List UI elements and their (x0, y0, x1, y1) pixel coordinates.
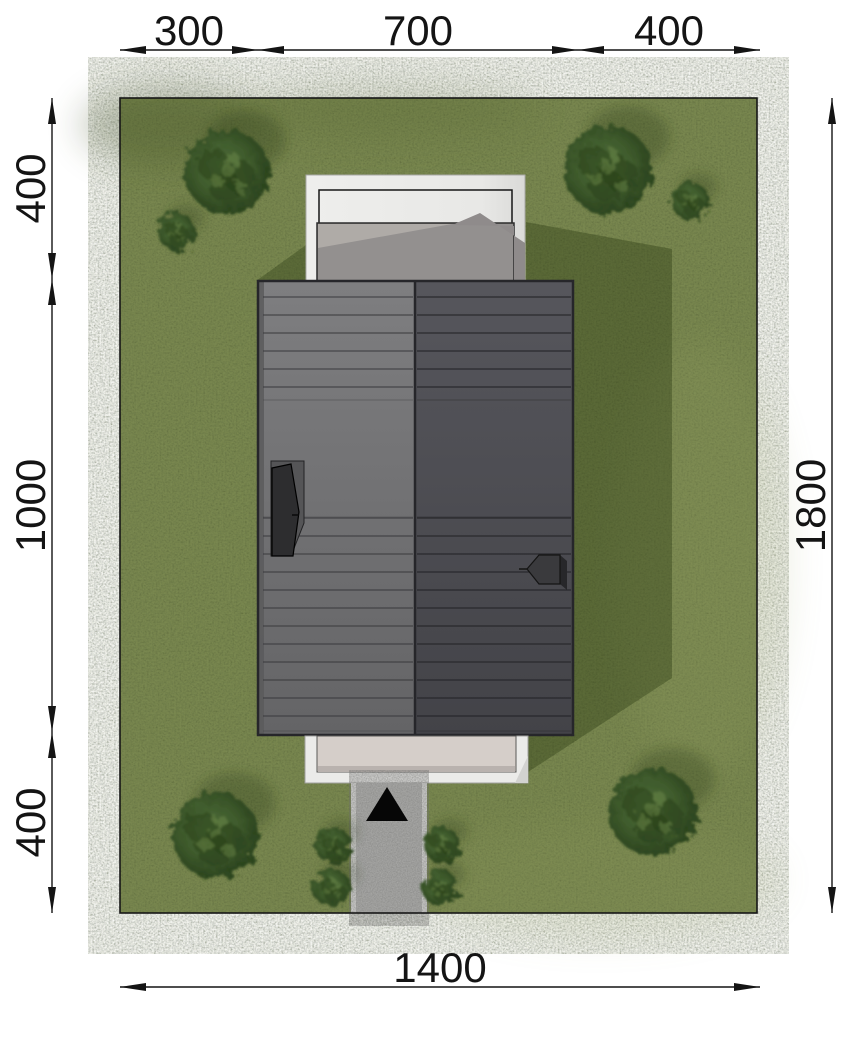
roof-right-panel (415, 281, 573, 735)
dimension-left: 4001000400 (7, 98, 56, 913)
bush-foliage (671, 182, 709, 220)
bush-foliage (424, 827, 460, 863)
dimension-label: 300 (154, 7, 224, 54)
bush-foliage (315, 827, 351, 863)
tree-foliage (172, 792, 258, 878)
dimension-top: 300700400 (120, 7, 760, 54)
site-plan-canvas: 300700400400100040018001400 (0, 0, 859, 1050)
dimension-bottom: 1400 (120, 944, 760, 991)
dimension-arrow-icon (552, 46, 578, 54)
driveway (351, 783, 427, 913)
dimension-label: 700 (383, 7, 453, 54)
dimension-label: 1000 (7, 459, 54, 552)
dimension-arrow-icon (48, 706, 56, 732)
roof (258, 281, 573, 735)
dimension-arrow-icon (734, 983, 760, 991)
dimension-label: 1400 (393, 944, 486, 991)
dimension-right: 1800 (787, 98, 836, 913)
bush-foliage (313, 869, 351, 907)
dimension-arrow-icon (120, 983, 146, 991)
tree-foliage (185, 130, 269, 214)
dimension-arrow-icon (48, 279, 56, 305)
site-plan-svg: 300700400400100040018001400 (0, 0, 859, 1050)
entry-porch (305, 736, 528, 783)
dimension-arrow-icon (828, 98, 836, 124)
dimension-label: 400 (7, 787, 54, 857)
plot (80, 85, 790, 940)
dimension-arrow-icon (258, 46, 284, 54)
dimension-arrow-icon (48, 253, 56, 279)
dimension-arrow-icon (828, 887, 836, 913)
bush-foliage (422, 870, 458, 906)
dimension-arrow-icon (48, 98, 56, 124)
tree-foliage (564, 126, 652, 214)
dimension-label: 400 (7, 153, 54, 223)
dimension-label: 1800 (787, 459, 834, 552)
dimension-arrow-icon (120, 46, 146, 54)
tree-foliage (609, 768, 697, 856)
dimension-arrow-icon (48, 887, 56, 913)
porch-deck-edge (318, 766, 515, 772)
terrace (306, 175, 525, 281)
bush-foliage (158, 213, 196, 251)
dimension-label: 400 (634, 7, 704, 54)
dimension-arrow-icon (578, 46, 604, 54)
dimension-arrow-icon (734, 46, 760, 54)
dimension-arrow-icon (48, 732, 56, 758)
dimension-arrow-icon (232, 46, 258, 54)
